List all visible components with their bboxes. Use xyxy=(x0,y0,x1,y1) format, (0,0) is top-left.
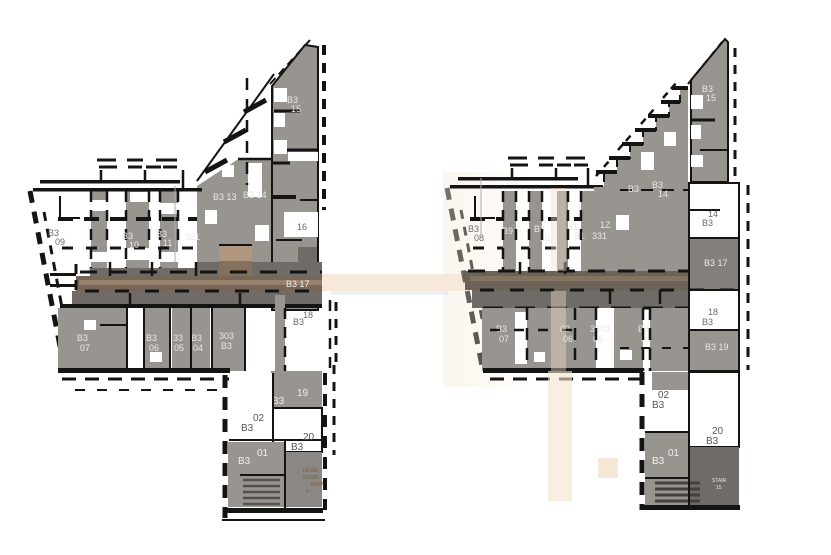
svg-text:B3 17: B3 17 xyxy=(704,258,728,268)
svg-text:3303: 3303 xyxy=(590,324,610,334)
svg-text:05: 05 xyxy=(593,334,603,344)
svg-text:B3: B3 xyxy=(146,333,157,343)
svg-text:B3 13: B3 13 xyxy=(213,192,237,202)
svg-text:B3: B3 xyxy=(702,317,713,327)
svg-text:33: 33 xyxy=(173,333,183,343)
svg-text:B3 17: B3 17 xyxy=(286,279,310,289)
svg-text:15: 15 xyxy=(706,93,716,103)
svg-text:15: 15 xyxy=(716,485,722,491)
svg-text:01: 01 xyxy=(668,448,680,459)
svg-text:18: 18 xyxy=(303,310,313,320)
svg-text:B3: B3 xyxy=(652,456,665,467)
svg-text:DOOR: DOOR xyxy=(303,475,318,481)
svg-text:14: 14 xyxy=(658,189,668,199)
svg-text:04: 04 xyxy=(193,343,203,353)
svg-text:02: 02 xyxy=(253,413,265,424)
svg-text:B3: B3 xyxy=(191,333,202,343)
svg-text:19: 19 xyxy=(297,388,309,399)
svg-text:321: 321 xyxy=(185,232,200,242)
svg-text:B3: B3 xyxy=(628,184,639,194)
svg-text:B3: B3 xyxy=(77,333,88,343)
svg-text:STAIR: STAIR xyxy=(712,478,727,484)
svg-text:06: 06 xyxy=(149,343,159,353)
svg-text:B3: B3 xyxy=(652,400,665,411)
svg-text:15: 15 xyxy=(291,104,301,114)
svg-text:11: 11 xyxy=(163,238,172,248)
svg-text:05: 05 xyxy=(174,343,184,353)
svg-text:08: 08 xyxy=(474,233,484,243)
svg-text:18: 18 xyxy=(708,307,718,317)
svg-text:10: 10 xyxy=(129,240,139,250)
svg-text:B3: B3 xyxy=(241,423,254,434)
svg-text:09: 09 xyxy=(55,237,65,247)
svg-text:16: 16 xyxy=(297,222,307,232)
svg-text:B3: B3 xyxy=(702,218,713,228)
svg-text:B3: B3 xyxy=(238,456,251,467)
svg-text:B3: B3 xyxy=(291,442,304,453)
svg-text:1Z: 1Z xyxy=(600,220,611,230)
svg-text:07: 07 xyxy=(80,343,90,353)
svg-text:01: 01 xyxy=(257,448,269,459)
svg-text:331: 331 xyxy=(592,231,607,241)
svg-text:B3 19: B3 19 xyxy=(705,342,729,352)
svg-text:LEVEL: LEVEL xyxy=(303,468,319,474)
svg-text:B3: B3 xyxy=(221,341,232,351)
svg-text:07: 07 xyxy=(499,334,509,344)
svg-text:#: # xyxy=(306,489,309,495)
svg-text:B3 14: B3 14 xyxy=(243,190,267,200)
svg-text:20: 20 xyxy=(303,432,315,443)
svg-text:B1: B1 xyxy=(574,231,585,241)
svg-text:303: 303 xyxy=(219,331,234,341)
svg-text:B3: B3 xyxy=(706,436,719,447)
svg-text:TRAP: TRAP xyxy=(310,482,324,488)
